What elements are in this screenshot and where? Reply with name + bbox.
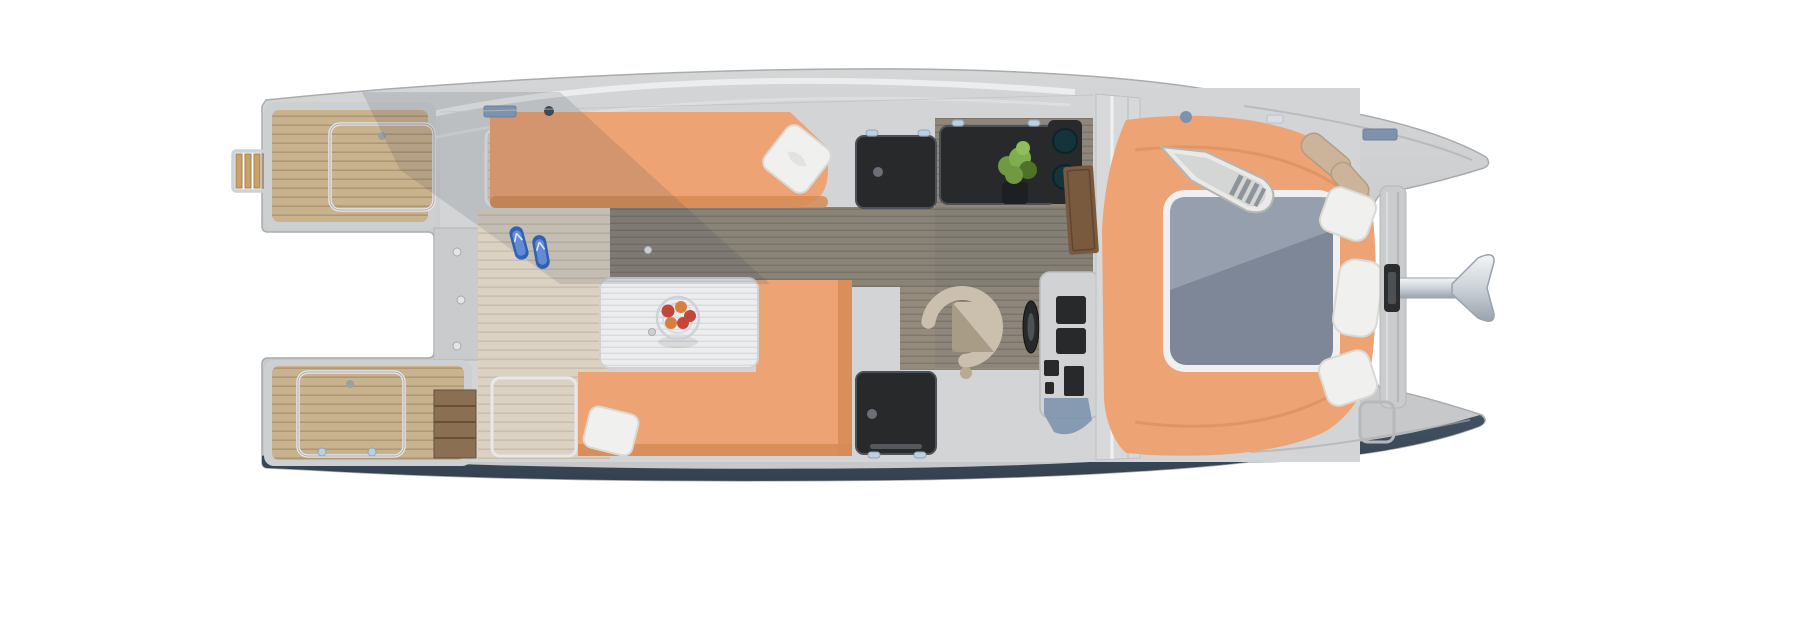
galley-hatch-top-small [856, 136, 936, 208]
yacht-deck-plan-image [0, 0, 1800, 639]
galley-counter [940, 126, 1056, 204]
anchor [1452, 255, 1494, 321]
mfd-screen [1056, 328, 1086, 354]
fruit-bowl [657, 297, 699, 348]
bow-skylight-window [1163, 190, 1340, 372]
bow-vent [1363, 129, 1397, 140]
companionway-stairs [434, 390, 476, 458]
helm-console [1040, 272, 1100, 434]
cockpit-hatch-bottom [492, 378, 576, 456]
dinette [578, 278, 852, 457]
yacht-deck-plan-svg [0, 0, 1800, 639]
transom-walkway [434, 228, 480, 360]
cabin-door [1063, 165, 1099, 255]
hatch-latch [346, 380, 354, 388]
mfd-screen [1056, 296, 1086, 324]
